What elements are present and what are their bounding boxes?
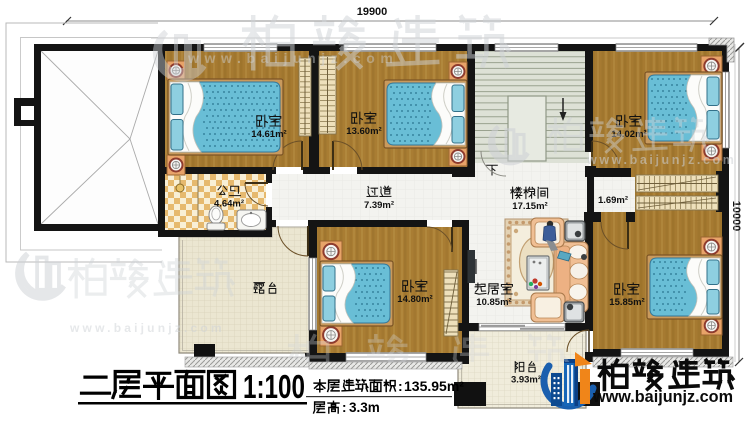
svg-text:3.3m: 3.3m xyxy=(349,400,380,415)
svg-text:1:100: 1:100 xyxy=(243,368,305,405)
svg-text:www.baijunjz.com: www.baijunjz.com xyxy=(69,321,225,335)
svg-text:14.61m²: 14.61m² xyxy=(251,129,286,140)
svg-text:19900: 19900 xyxy=(357,6,388,18)
svg-text:15.85m²: 15.85m² xyxy=(609,297,644,308)
svg-text::: : xyxy=(398,378,403,394)
svg-text:14.80m²: 14.80m² xyxy=(397,294,432,305)
svg-text:10.85m²: 10.85m² xyxy=(476,297,511,308)
svg-text:4.64m²: 4.64m² xyxy=(214,199,244,210)
svg-text:7.39m²: 7.39m² xyxy=(364,200,394,211)
svg-text:17.15m²: 17.15m² xyxy=(512,201,547,212)
svg-text:135.95m²: 135.95m² xyxy=(404,378,464,394)
svg-text:www.baijunjz.com: www.baijunjz.com xyxy=(592,387,733,406)
svg-text:13.60m²: 13.60m² xyxy=(346,126,381,137)
svg-text:3.93m²: 3.93m² xyxy=(511,375,541,386)
svg-text:www.baijunjz.com: www.baijunjz.com xyxy=(586,153,736,167)
svg-text:10000: 10000 xyxy=(730,201,742,232)
svg-text::: : xyxy=(342,400,347,415)
svg-text:www.baijunjz.com: www.baijunjz.com xyxy=(187,50,398,66)
svg-text:1.69m²: 1.69m² xyxy=(598,195,628,206)
